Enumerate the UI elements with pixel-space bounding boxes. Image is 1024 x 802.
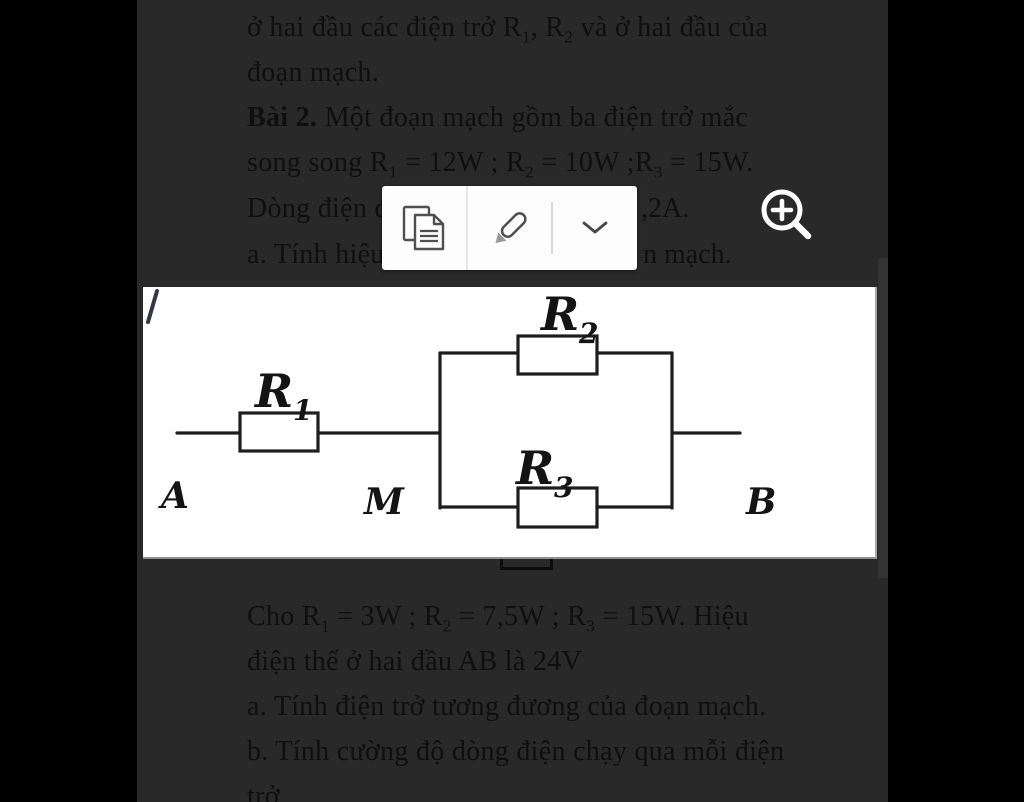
label-r3: R <box>514 441 554 495</box>
label-r2-sub: 2 <box>578 317 598 350</box>
label-node-m: M <box>362 481 405 523</box>
doc-line-2: đoạn mạch. <box>247 57 379 89</box>
chevron-down-icon <box>582 221 608 235</box>
doc-line-6-right: n mạch. <box>643 239 732 271</box>
circuit-diagram-svg: R 1 R 2 R 3 A M B <box>143 287 877 559</box>
label-node-a: A <box>158 475 189 517</box>
doc-line-3-text: Một đoạn mạch gồm ba điện trở mắc <box>317 102 748 133</box>
selection-toolbar <box>382 186 637 270</box>
doc-line-1: ở hai đầu các điện trở R1, R2 và ở hai đ… <box>247 12 768 54</box>
doc-line-10: b. Tính cường độ dòng điện chạy qua mỗi … <box>247 736 784 768</box>
highlight-button[interactable] <box>468 186 552 270</box>
screenshot-root: ở hai đầu các điện trở R1, R2 và ở hai đ… <box>0 0 1024 802</box>
doc-line-5-left: Dòng điện đ <box>247 193 389 225</box>
doc-line-7: Cho R1 = 3W ; R2 = 7,5W ; R3 = 15W. Hiệu <box>247 601 749 643</box>
doc-line-5-right: ,2A. <box>641 193 689 225</box>
scrollbar-thumb[interactable] <box>878 258 888 578</box>
label-r2: R <box>539 287 579 341</box>
label-node-b: B <box>745 481 776 523</box>
doc-line-9: a. Tính điện trở tương đương của đoạn mạ… <box>247 691 766 723</box>
copy-icon <box>401 204 447 252</box>
doc-line-6-left: a. Tính hiệu <box>247 239 385 271</box>
zoom-in-icon <box>757 186 817 246</box>
label-r1: R <box>253 364 293 418</box>
doc-line-8: điện thế ở hai đầu AB là 24V <box>247 646 582 678</box>
next-figure-edge <box>500 559 553 570</box>
label-r3-sub: 3 <box>554 471 573 504</box>
doc-line-11: trở <box>247 781 280 802</box>
zoom-in-button[interactable] <box>757 186 817 246</box>
more-button[interactable] <box>553 186 637 270</box>
doc-line-4: song song R1 = 12W ; R2 = 10W ;R3 = 15W. <box>247 147 754 189</box>
doc-line-3: Bài 2. Một đoạn mạch gồm ba điện trở mắc <box>247 102 748 134</box>
problem-number: Bài 2. <box>247 102 317 133</box>
stray-pen-mark <box>148 291 157 322</box>
label-r1-sub: 1 <box>293 394 312 427</box>
circuit-image[interactable]: R 1 R 2 R 3 A M B <box>143 287 877 559</box>
copy-button[interactable] <box>382 186 466 270</box>
highlighter-icon <box>487 205 533 251</box>
